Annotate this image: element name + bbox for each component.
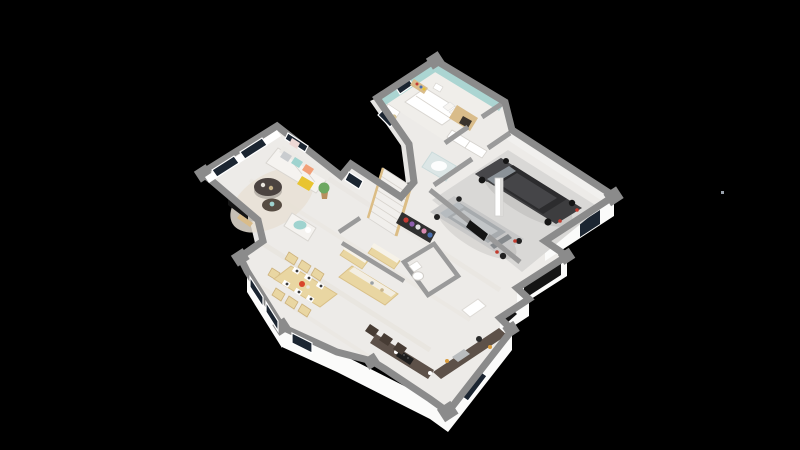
hatchback-wheel xyxy=(434,214,440,220)
armchair-cushion xyxy=(294,221,307,230)
hatchback-taillight xyxy=(495,250,499,254)
suv-wheel xyxy=(569,200,575,206)
clothes-item xyxy=(421,228,426,233)
suv-wheel xyxy=(544,218,551,225)
floorplan-viewport xyxy=(0,0,800,450)
hatchback-wheel xyxy=(516,238,522,244)
coffee-table-large xyxy=(254,178,282,196)
hatchback-taillight xyxy=(513,239,517,243)
island-faucet xyxy=(370,281,374,285)
centerpiece xyxy=(299,281,305,287)
garage-pillar xyxy=(495,178,503,216)
hatchback-wheel xyxy=(456,196,462,202)
suv-wheel xyxy=(479,177,486,184)
clothes-item xyxy=(403,217,408,222)
coffee-machine xyxy=(476,336,482,342)
floorplan-canvas[interactable] xyxy=(0,0,800,450)
hatchback-wheel xyxy=(500,253,506,259)
clothes-item xyxy=(427,232,432,237)
suv-taillight xyxy=(558,219,562,223)
clothes-item xyxy=(409,221,414,226)
clothes-item xyxy=(415,224,420,229)
artifact-dot xyxy=(721,191,724,194)
suv-taillight xyxy=(575,208,579,212)
suv-wheel xyxy=(503,158,509,164)
